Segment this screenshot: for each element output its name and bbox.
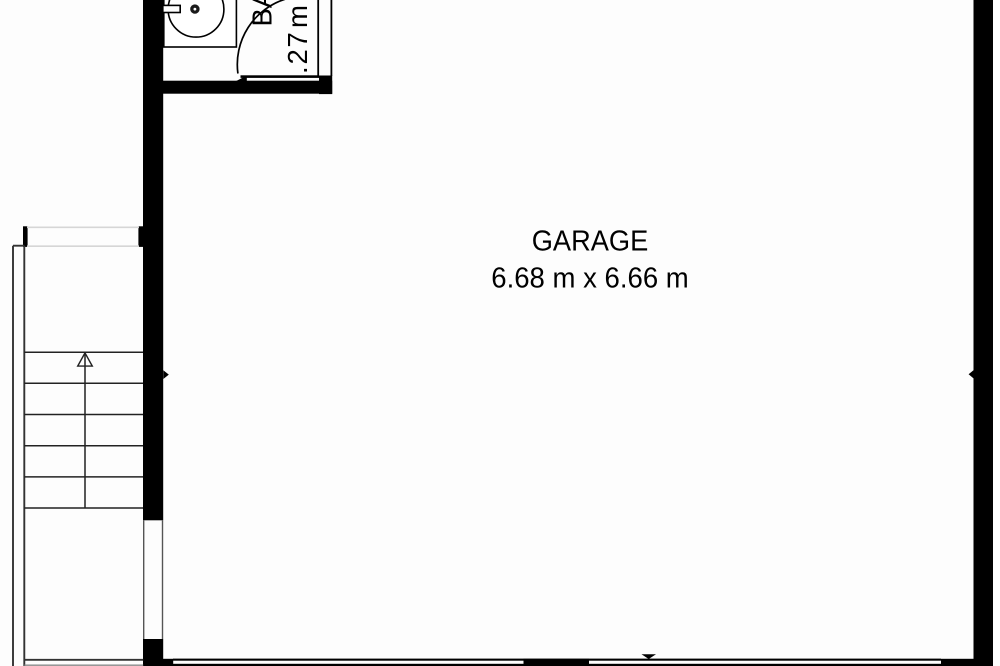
- svg-text:6.68 m x 6.66 m: 6.68 m x 6.66 m: [491, 263, 689, 295]
- svg-text:m: m: [282, 5, 313, 28]
- svg-text:BAD: BAD: [247, 0, 278, 27]
- svg-text:.27: .27: [282, 30, 313, 74]
- svg-text:GARAGE: GARAGE: [532, 226, 649, 258]
